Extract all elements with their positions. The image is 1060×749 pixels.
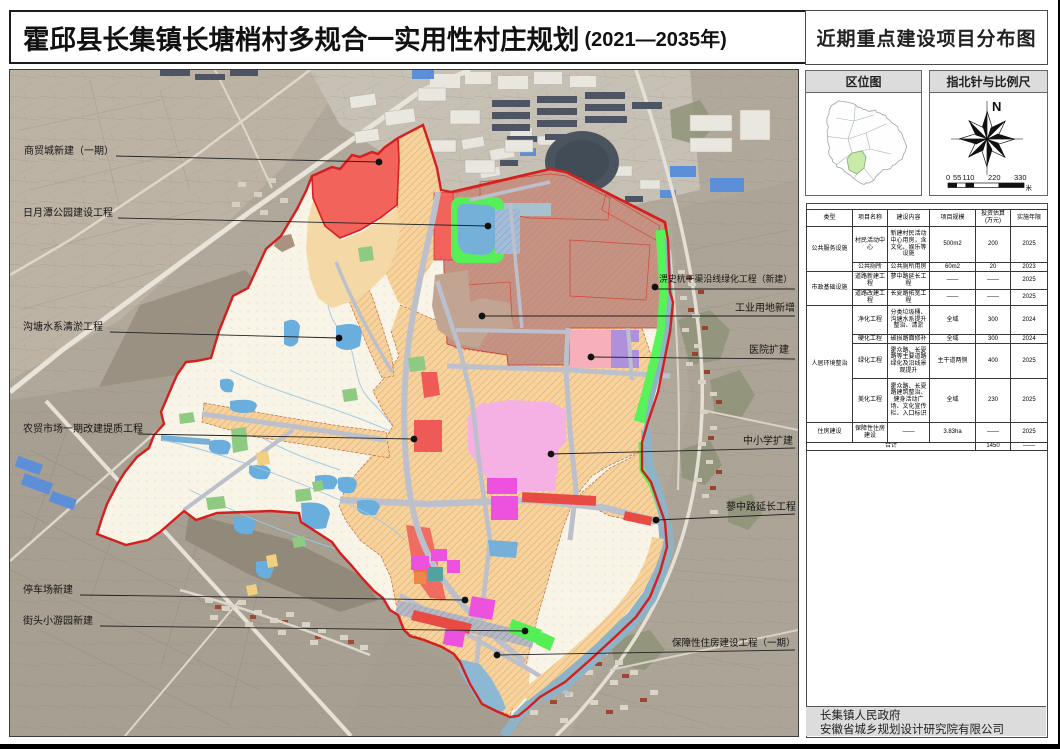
svg-text:商贸城新建（一期）: 商贸城新建（一期） [24, 144, 114, 157]
svg-text:中小学扩建: 中小学扩建 [743, 434, 793, 447]
svg-text:220: 220 [988, 173, 1001, 182]
svg-text:蓼中路延长工程: 蓼中路延长工程 [726, 500, 796, 513]
svg-text:沟塘水系清淤工程: 沟塘水系清淤工程 [23, 320, 103, 333]
svg-text:日月潭公园建设工程: 日月潭公园建设工程 [23, 206, 113, 219]
svg-text:0: 0 [946, 173, 950, 182]
svg-text:米: 米 [1026, 183, 1033, 192]
svg-text:110: 110 [963, 173, 975, 182]
svg-text:街头小游园新建: 街头小游园新建 [23, 614, 93, 627]
svg-text:330: 330 [1014, 173, 1027, 182]
svg-text:农贸市场一期改建提质工程: 农贸市场一期改建提质工程 [23, 422, 143, 435]
svg-text:N: N [992, 99, 1001, 114]
svg-text:医院扩建: 医院扩建 [749, 343, 789, 356]
svg-text:停车场新建: 停车场新建 [23, 583, 73, 596]
svg-text:保障性住房建设工程（一期）: 保障性住房建设工程（一期） [672, 637, 796, 649]
svg-text:工业用地新增: 工业用地新增 [735, 301, 795, 314]
svg-text:55: 55 [953, 173, 961, 182]
svg-text:淠史杭干渠沿线绿化工程（新建）: 淠史杭干渠沿线绿化工程（新建） [659, 273, 792, 284]
